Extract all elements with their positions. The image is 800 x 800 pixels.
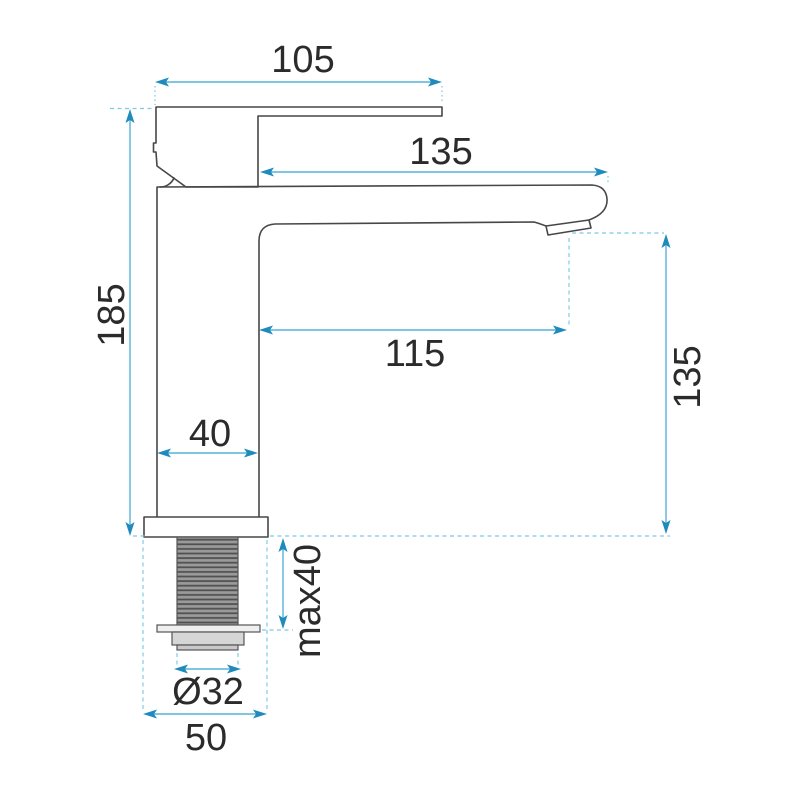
dim-label-115: 115: [385, 333, 446, 375]
dim-label-135-right: 135: [667, 345, 709, 408]
drawing-canvas: 105 135 185 115 135 40: [0, 0, 800, 800]
faucet-handle-lever: [154, 107, 443, 187]
dim-spout-reach-115: 115: [259, 238, 569, 375]
faucet-nut-collar: [177, 645, 238, 650]
faucet-body-spout: [157, 185, 607, 517]
dim-label-50: 50: [185, 717, 227, 759]
faucet-handle-pivot-arc: [160, 178, 174, 187]
dim-label-diameter-32: Ø32: [172, 671, 244, 713]
dim-overall-height-185: 185: [91, 109, 154, 537]
dim-spout-overall-135: 135: [260, 131, 608, 184]
faucet-mounting-nut: [172, 632, 244, 645]
dim-handle-width-105: 105: [155, 39, 442, 105]
dim-body-width-40: 40: [157, 413, 258, 458]
faucet-threaded-shank: [177, 537, 238, 625]
faucet-base-plate: [144, 517, 268, 537]
dim-label-max40: max40: [287, 544, 329, 658]
dim-label-105: 105: [271, 39, 334, 81]
faucet-technical-drawing: 105 135 185 115 135 40: [0, 0, 800, 800]
faucet-washer: [157, 625, 260, 632]
dim-label-40: 40: [189, 413, 231, 455]
dim-label-185: 185: [91, 283, 133, 346]
faucet-aerator: [546, 220, 591, 235]
faucet-outline: [144, 107, 607, 650]
dim-outlet-height-135: 135: [270, 233, 709, 536]
dim-max-mounting-thickness: max40: [262, 538, 329, 658]
dim-shank-diameter-32: Ø32: [172, 653, 244, 713]
dim-label-135-top: 135: [409, 131, 472, 173]
